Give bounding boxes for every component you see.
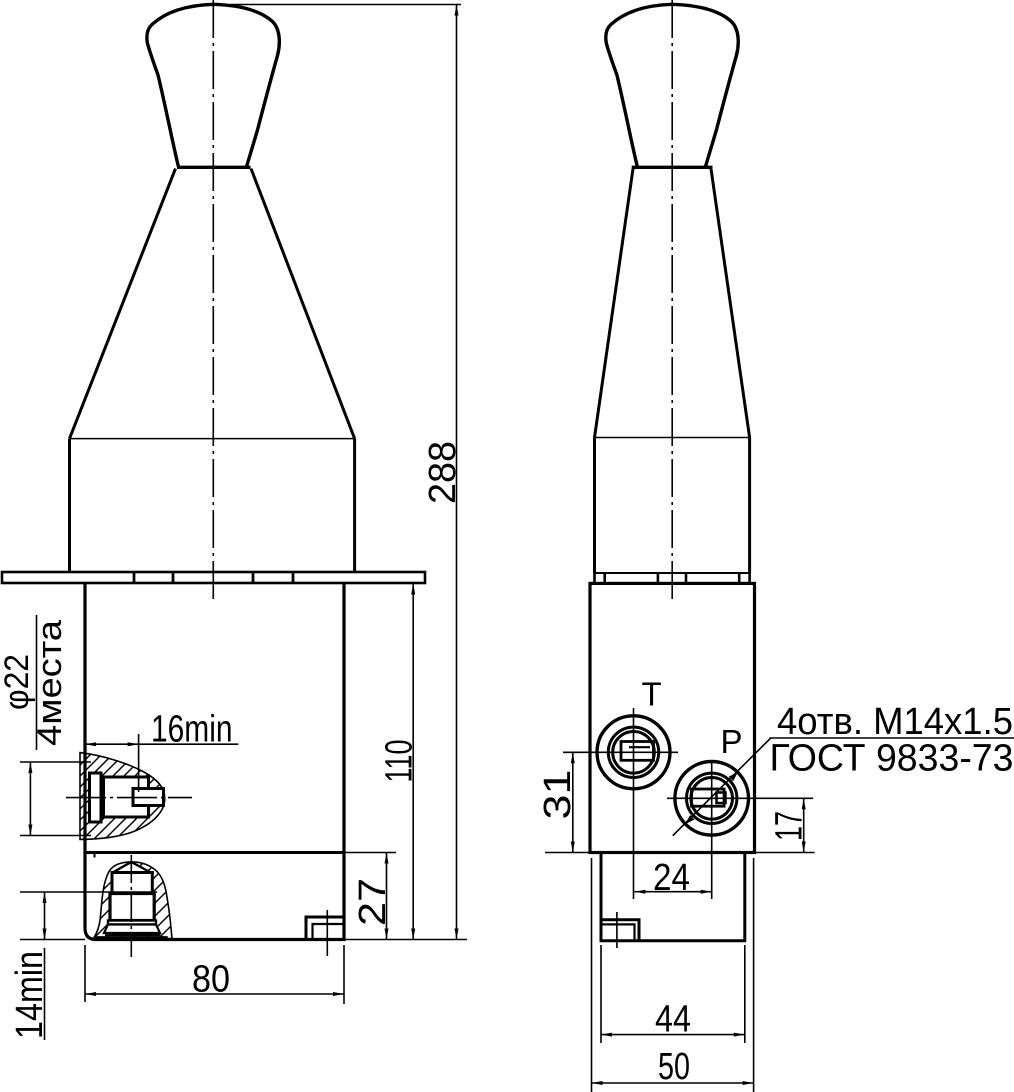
svg-text:16min: 16min: [151, 709, 233, 751]
svg-text:288: 288: [422, 441, 464, 504]
svg-text:110: 110: [379, 740, 421, 783]
svg-text:P: P: [721, 723, 743, 760]
svg-text:27: 27: [352, 878, 394, 926]
svg-text:50: 50: [658, 1046, 690, 1088]
svg-text:ГОСТ 9833-73: ГОСТ 9833-73: [770, 738, 1014, 780]
svg-text:17: 17: [769, 811, 811, 841]
svg-text:24: 24: [653, 857, 690, 899]
svg-text:31: 31: [537, 770, 579, 820]
svg-text:14min: 14min: [9, 951, 51, 1039]
svg-text:80: 80: [192, 959, 230, 1001]
svg-text:44: 44: [655, 998, 691, 1040]
svg-text:4места: 4места: [31, 620, 69, 746]
svg-text:T: T: [642, 676, 662, 713]
